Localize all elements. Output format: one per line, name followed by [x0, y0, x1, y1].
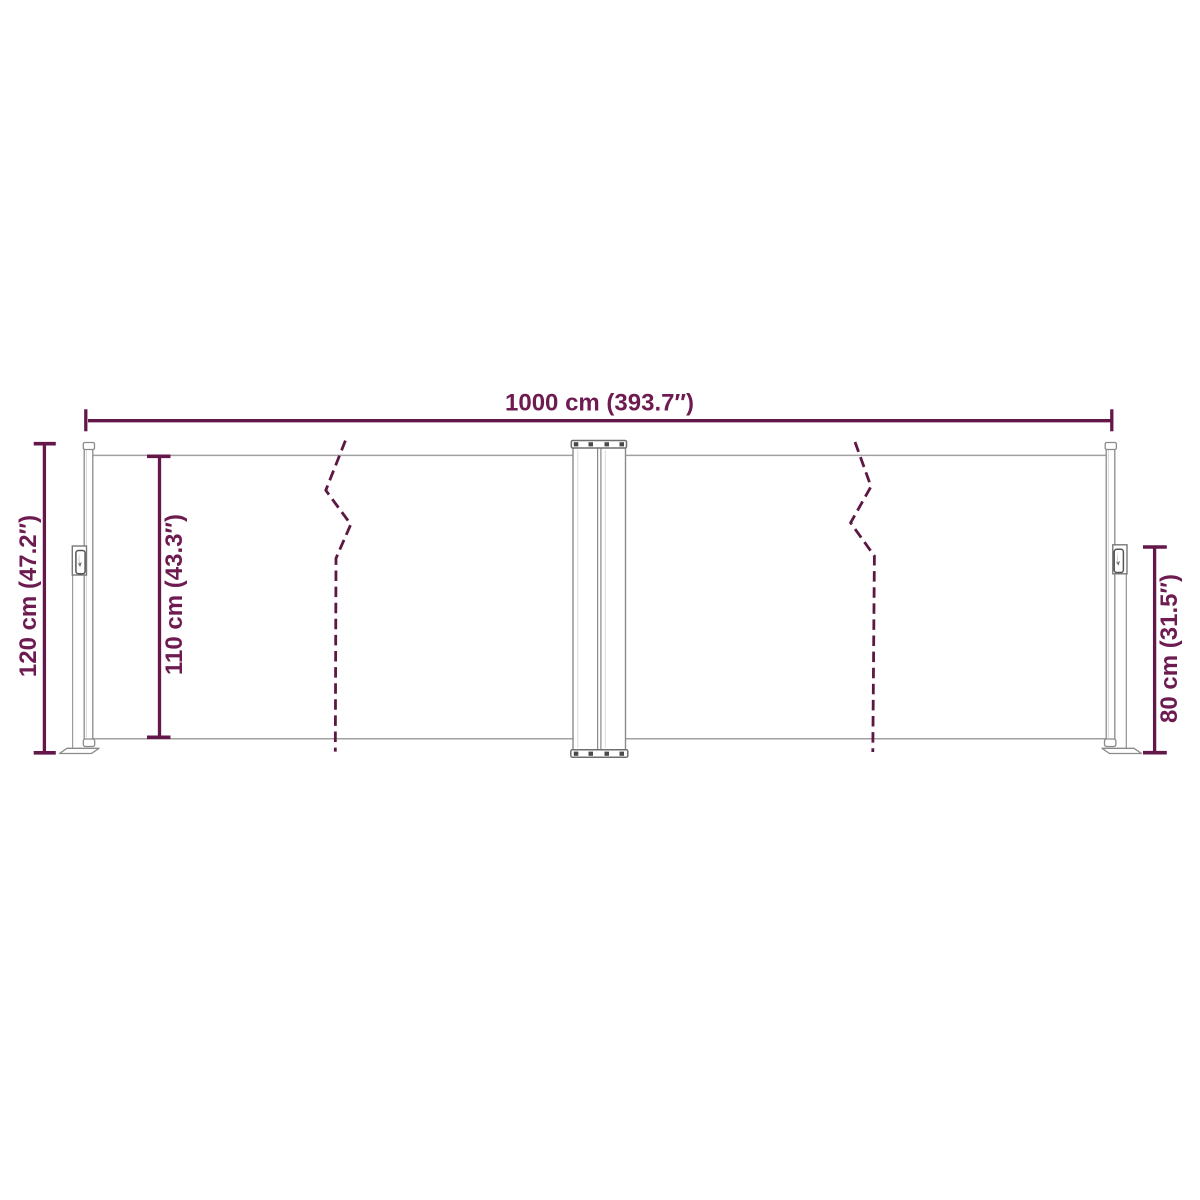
svg-text:110 cm (43.3″): 110 cm (43.3″): [161, 514, 188, 675]
svg-text:80 cm (31.5″): 80 cm (31.5″): [1156, 574, 1183, 723]
svg-text:1000 cm (393.7″): 1000 cm (393.7″): [505, 390, 694, 417]
svg-text:120 cm (47.2″): 120 cm (47.2″): [15, 515, 42, 677]
